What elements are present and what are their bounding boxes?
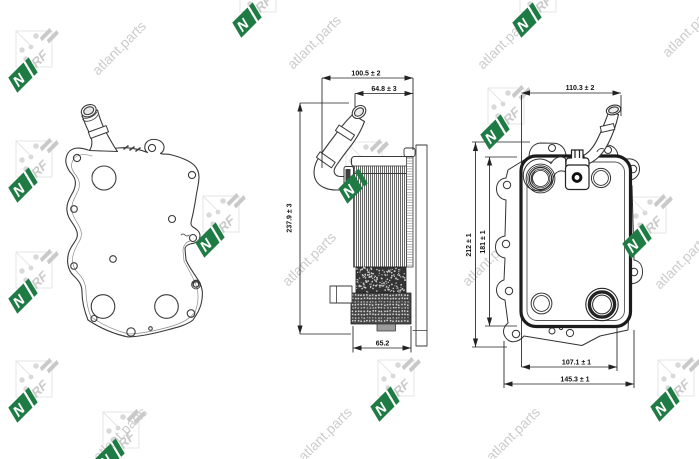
svg-text:145.3 ± 1: 145.3 ± 1 bbox=[560, 377, 589, 384]
svg-text:181 ± 1: 181 ± 1 bbox=[480, 230, 487, 253]
svg-text:237.9 ± 3: 237.9 ± 3 bbox=[287, 203, 294, 232]
svg-text:212 ± 1: 212 ± 1 bbox=[466, 233, 473, 256]
svg-text:100.5 ± 2: 100.5 ± 2 bbox=[351, 71, 380, 78]
svg-text:64.8 ± 3: 64.8 ± 3 bbox=[371, 86, 396, 93]
svg-text:110.3 ± 2: 110.3 ± 2 bbox=[566, 85, 595, 92]
svg-text:65.2: 65.2 bbox=[376, 341, 390, 348]
svg-text:107.1 ± 1: 107.1 ± 1 bbox=[562, 360, 591, 367]
